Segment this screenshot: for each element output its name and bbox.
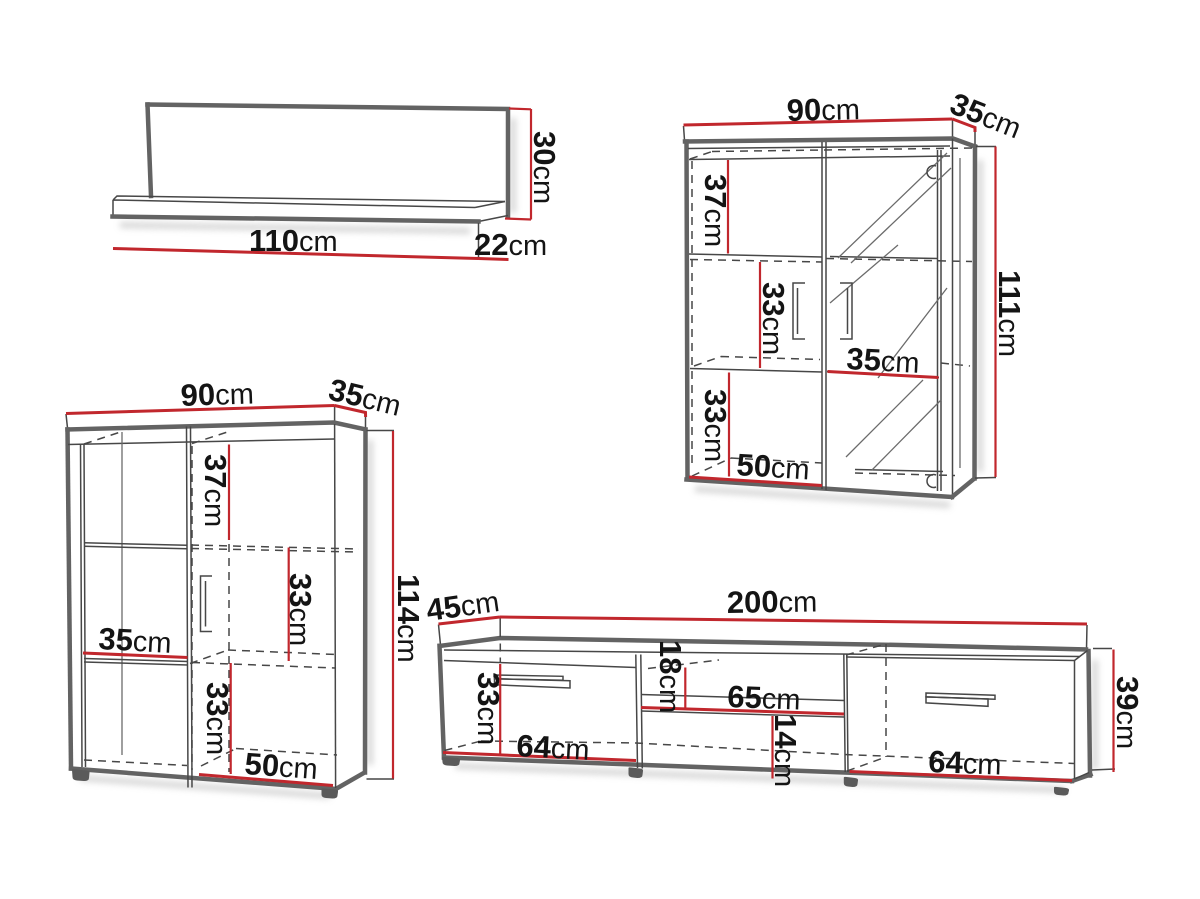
svg-text:111cm: 111cm xyxy=(992,270,1027,357)
svg-text:18cm: 18cm xyxy=(653,640,688,713)
svg-text:64cm: 64cm xyxy=(928,744,1002,782)
svg-text:65cm: 65cm xyxy=(727,679,801,717)
svg-text:37cm: 37cm xyxy=(698,174,733,247)
svg-text:33cm: 33cm xyxy=(756,282,791,355)
svg-text:64cm: 64cm xyxy=(516,728,591,767)
svg-text:39cm: 39cm xyxy=(1110,676,1145,749)
svg-text:114cm: 114cm xyxy=(391,574,426,663)
svg-text:33cm: 33cm xyxy=(698,389,733,462)
svg-text:35cm: 35cm xyxy=(98,621,173,660)
svg-text:33cm: 33cm xyxy=(200,682,235,755)
svg-text:35cm: 35cm xyxy=(846,341,921,380)
svg-text:30cm: 30cm xyxy=(527,131,562,204)
svg-text:110cm: 110cm xyxy=(249,223,338,258)
svg-text:14cm: 14cm xyxy=(768,714,803,787)
svg-text:37cm: 37cm xyxy=(198,454,233,527)
svg-text:22cm: 22cm xyxy=(474,227,547,262)
svg-text:90cm: 90cm xyxy=(786,91,860,128)
svg-text:90cm: 90cm xyxy=(180,375,254,413)
svg-text:200cm: 200cm xyxy=(727,583,818,620)
svg-text:33cm: 33cm xyxy=(283,573,318,646)
svg-text:33cm: 33cm xyxy=(471,672,506,745)
svg-text:50cm: 50cm xyxy=(736,447,811,486)
